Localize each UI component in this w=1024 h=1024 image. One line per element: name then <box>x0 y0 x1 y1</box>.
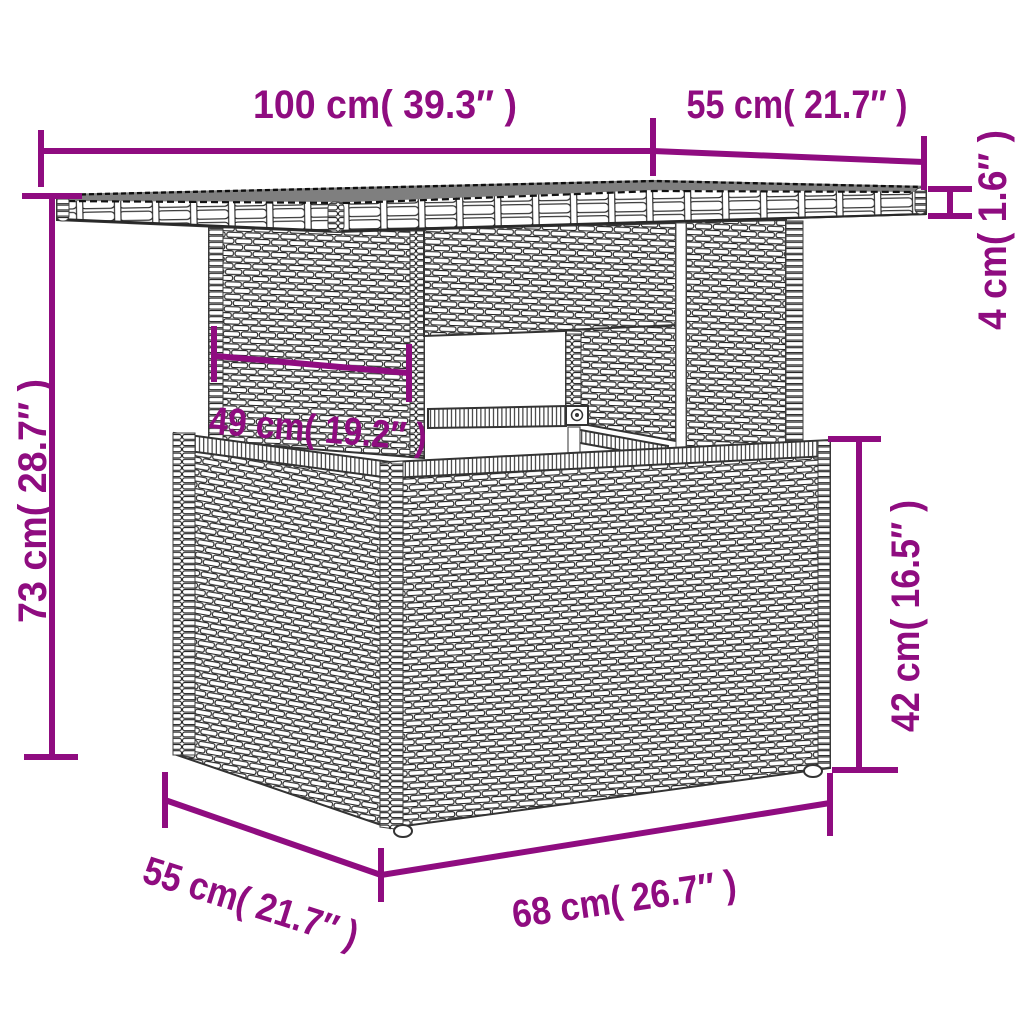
svg-text:42 cm( 16.5″ ): 42 cm( 16.5″ ) <box>884 500 928 732</box>
svg-text:73 cm( 28.7″ ): 73 cm( 28.7″ ) <box>11 379 55 623</box>
svg-text:55 cm( 21.7″ ): 55 cm( 21.7″ ) <box>687 83 908 127</box>
svg-text:100 cm( 39.3″ ): 100 cm( 39.3″ ) <box>253 83 517 127</box>
svg-text:4 cm( 1.6″ ): 4 cm( 1.6″ ) <box>971 130 1015 330</box>
svg-text:68 cm( 26.7″ ): 68 cm( 26.7″ ) <box>509 862 739 936</box>
svg-text:55 cm( 21.7″ ): 55 cm( 21.7″ ) <box>138 849 364 957</box>
